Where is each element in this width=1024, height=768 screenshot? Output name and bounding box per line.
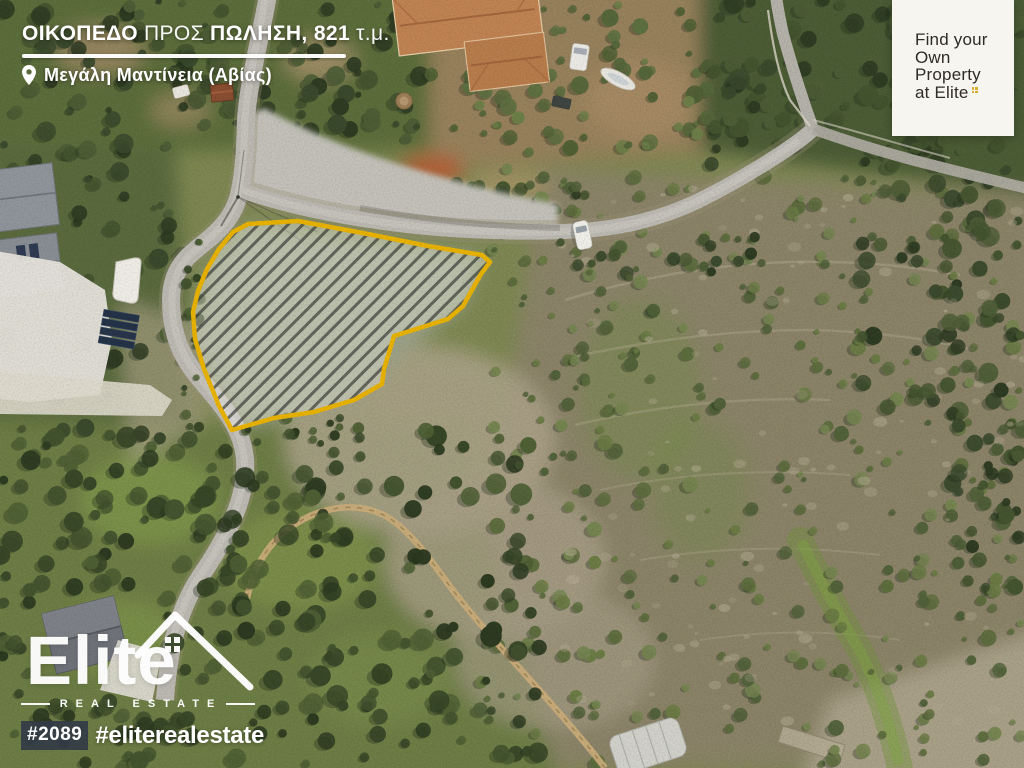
promo-line-3: Property bbox=[915, 66, 1014, 84]
real-estate-listing-image: ΟΙΚΟΠΕΔΟΠΡΟΣΠΩΛΗΣΗ, 821τ.μ. Μεγάλη Μαντί… bbox=[0, 0, 1024, 768]
listing-number-badge: #2089 bbox=[21, 721, 88, 750]
listing-tags-row: #2089 #eliterealestate bbox=[21, 721, 264, 750]
promo-line-1: Find your bbox=[915, 31, 1014, 49]
elite-window-icon bbox=[972, 87, 978, 93]
promo-line-4: at Elite bbox=[915, 84, 1014, 102]
listing-header: ΟΙΚΟΠΕΔΟΠΡΟΣΠΩΛΗΣΗ, 821τ.μ. Μεγάλη Μαντί… bbox=[22, 22, 396, 86]
title-part-sale-area: ΠΩΛΗΣΗ, 821 bbox=[210, 22, 350, 45]
brand-subtitle-row: REAL ESTATE bbox=[21, 698, 255, 710]
title-part-for: ΠΡΟΣ bbox=[144, 22, 204, 45]
brand-hashtag: #eliterealestate bbox=[95, 722, 264, 750]
promo-line-2: Own bbox=[915, 49, 1014, 67]
subtitle-line-left bbox=[21, 703, 50, 706]
listing-title: ΟΙΚΟΠΕΔΟΠΡΟΣΠΩΛΗΣΗ, 821τ.μ. bbox=[22, 22, 396, 46]
location-row: Μεγάλη Μαντίνεια (Αβίας) bbox=[22, 65, 396, 86]
subtitle-line-right bbox=[226, 703, 255, 706]
title-part-property-type: ΟΙΚΟΠΕΔΟ bbox=[22, 22, 138, 45]
title-underline bbox=[22, 54, 346, 58]
promo-card: Find your Own Property at Elite bbox=[892, 0, 1014, 136]
brand-subtitle: REAL ESTATE bbox=[50, 698, 227, 710]
location-text: Μεγάλη Μαντίνεια (Αβίας) bbox=[44, 65, 272, 86]
location-pin-icon bbox=[22, 65, 36, 85]
title-part-sqm-unit: τ.μ. bbox=[356, 22, 390, 45]
